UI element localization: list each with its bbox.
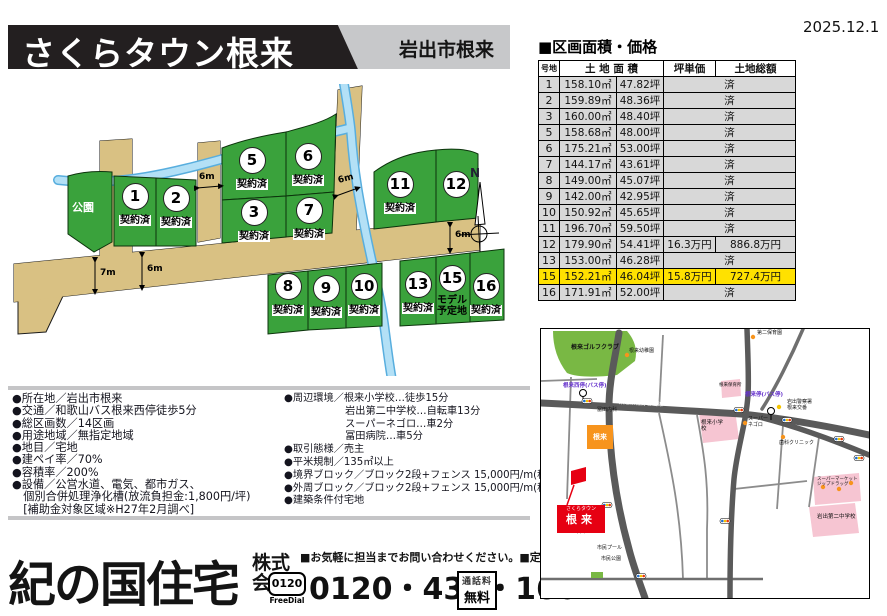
detail-line: ●周辺環境／根来小学校…徒歩15分 — [284, 393, 536, 406]
price-row: 7144.17㎡43.61坪済 — [539, 157, 796, 173]
price-section: ■区画面積・価格 号地 土 地 面 積 坪単価 土地総額 1158.10㎡47.… — [538, 36, 798, 301]
header-banner: さくらタウン根来 岩出市根来 — [8, 25, 510, 69]
company-name: 紀の国住宅 — [8, 545, 238, 615]
divider-bottom — [8, 516, 530, 520]
park-label: 公園 — [72, 199, 94, 215]
price-section-title: ■区画面積・価格 — [538, 36, 798, 57]
location-label: 岩出市根来 — [399, 35, 494, 62]
map-label-golf: 根来ゴルフクラブ — [571, 345, 619, 352]
price-row: 6175.21㎡53.00坪済 — [539, 141, 796, 157]
map-label-bus-main: 根来停(バス停) — [745, 392, 783, 398]
map-label-nursery: 根来保育所 — [719, 383, 742, 388]
price-row: 15152.21㎡46.04坪15.8万円727.4万円 — [539, 269, 796, 285]
lot-marker-6: 6契約済 — [286, 143, 330, 186]
map-label-nursery2: 第二保育園 — [757, 331, 782, 337]
lot-marker-5: 5契約済 — [230, 147, 274, 190]
detail-line: スーパーネゴロ…車2分 — [284, 419, 536, 432]
lot-marker-3: 3契約済 — [232, 199, 276, 242]
map-label-civic-park: 市民公園 — [601, 557, 621, 563]
lot-marker-12: 12 — [434, 171, 478, 198]
access-map: 根来ゴルフクラブ 根来幼稚園 第二保育園 根来西停(バス停) 根来停(バス停) … — [540, 328, 870, 599]
map-label-bus-west: 根来西停(バス停) — [563, 383, 607, 389]
price-row: 1158.10㎡47.82坪済 — [539, 77, 796, 93]
price-row: 3160.00㎡48.40坪済 — [539, 109, 796, 125]
col-total: 土地総額 — [716, 61, 796, 77]
lot-marker-7: 7契約済 — [287, 197, 331, 240]
map-label-dental: 歯科クリニック — [779, 441, 814, 447]
price-row: 10150.92㎡45.65坪済 — [539, 205, 796, 221]
map-conbini-marker: 根来 — [587, 425, 613, 449]
price-row: 13153.00㎡46.28坪済 — [539, 253, 796, 269]
lot-marker-2: 2契約済 — [154, 185, 198, 228]
col-lot: 号地 — [539, 61, 560, 77]
site-plan: 公園 N 1契約済 2契約済 3契約済 5契約済 6契約済 7契約済 8契約済 … — [8, 84, 530, 376]
map-label-tomita-clinic: 冨田内科 — [597, 408, 617, 414]
date-label: 2025.12.1 — [803, 18, 879, 36]
detail-line: ●外周ブロック／ブロック2段+フェンス 15,000円/m(税抜) — [284, 483, 536, 496]
price-row: 11196.70㎡59.50坪済 — [539, 221, 796, 237]
detail-line: 岩出第二中学校…自転車13分 — [284, 406, 536, 419]
detail-line: ●建ペイ率／70% — [12, 454, 280, 466]
civic-park-area — [591, 572, 603, 578]
page-title: さくらタウン根来 — [22, 27, 294, 75]
detail-line: ●取引態様／売主 — [284, 444, 536, 457]
freedial-logo: 0120 FreeDial — [268, 572, 306, 605]
detail-line: ●境界ブロック／ブロック2段+フェンス 15,000円/m(税抜) — [284, 470, 536, 483]
phone-number: 0120・433・160 — [309, 564, 578, 608]
access-map-drawing — [541, 329, 869, 598]
lot-marker-1: 1契約済 — [113, 183, 157, 226]
map-label-shopping: スーパーマーケット ジップドラッグ — [817, 477, 857, 487]
map-label-elementary: 根来小学校 — [701, 420, 727, 433]
lot-marker-16: 16契約済 — [464, 273, 508, 316]
price-row: 9142.00㎡42.95坪済 — [539, 189, 796, 205]
price-row: 5158.68㎡48.00坪済 — [539, 125, 796, 141]
map-site-marker: さくらタウン 根来 — [557, 505, 605, 533]
price-table-body: 1158.10㎡47.82坪済2159.89㎡48.36坪済3160.00㎡48… — [539, 77, 796, 301]
lot-marker-10: 10契約済 — [342, 273, 386, 316]
detail-line: 個別合併処理浄化槽(放流負担金:1,800円/坪) — [12, 491, 280, 503]
dim-6m-a: 6m — [199, 172, 215, 182]
col-area: 土 地 面 積 — [560, 61, 664, 77]
price-row: 8149.00㎡45.07坪済 — [539, 173, 796, 189]
details-left: ●所在地／岩出市根来●交通／和歌山バス根来西停徒歩5分●総区画数／14区画●用途… — [12, 393, 280, 516]
price-row: 16171.91㎡52.00坪済 — [539, 285, 796, 301]
dim-6m-c: 6m — [455, 230, 471, 240]
detail-line: [補助金対象区域※H27年2月調べ] — [12, 504, 280, 516]
flyer-page: さくらタウン根来 岩出市根来 2025.12.1 ■区画面積・価格 号地 土 地… — [0, 0, 887, 616]
details-right: ●周辺環境／根来小学校…徒歩15分 岩出第二中学校…自転車13分 スーパーネゴロ… — [284, 393, 536, 508]
price-table: 号地 土 地 面 積 坪単価 土地総額 1158.10㎡47.82坪済2159.… — [538, 60, 796, 301]
divider-top — [8, 386, 530, 390]
price-row: 12179.90㎡54.41坪16.3万円886.8万円 — [539, 237, 796, 253]
price-table-header: 号地 土 地 面 積 坪単価 土地総額 — [539, 61, 796, 77]
tollfree-badge: 通話料 無料 — [457, 571, 497, 610]
lot-marker-11: 11契約済 — [378, 171, 422, 214]
col-unit-price: 坪単価 — [664, 61, 716, 77]
golf-area — [553, 331, 636, 377]
detail-line: ●平米規制／135㎡以上 — [284, 457, 536, 470]
map-label-police: 岩出警察署 根来交番 — [787, 400, 812, 412]
map-label-junior-high: 岩出第二中学校 — [817, 514, 857, 520]
site-flag — [567, 467, 586, 505]
detail-line: ●交通／和歌山バス根来西停徒歩5分 — [12, 405, 280, 417]
dim-6m-d: 6m — [147, 264, 163, 274]
freedial-number-icon: 0120 — [268, 572, 306, 596]
price-row: 2159.89㎡48.36坪済 — [539, 93, 796, 109]
detail-line: 冨田病院…車5分 — [284, 431, 536, 444]
detail-line: ●建築条件付宅地 — [284, 495, 536, 508]
map-label-kindergarten: 根来幼稚園 — [629, 349, 654, 355]
map-label-pool: 市民プール — [597, 546, 622, 552]
map-label-supermarket: スーパー ネゴロ — [748, 417, 768, 429]
dim-7m: 7m — [100, 268, 116, 278]
